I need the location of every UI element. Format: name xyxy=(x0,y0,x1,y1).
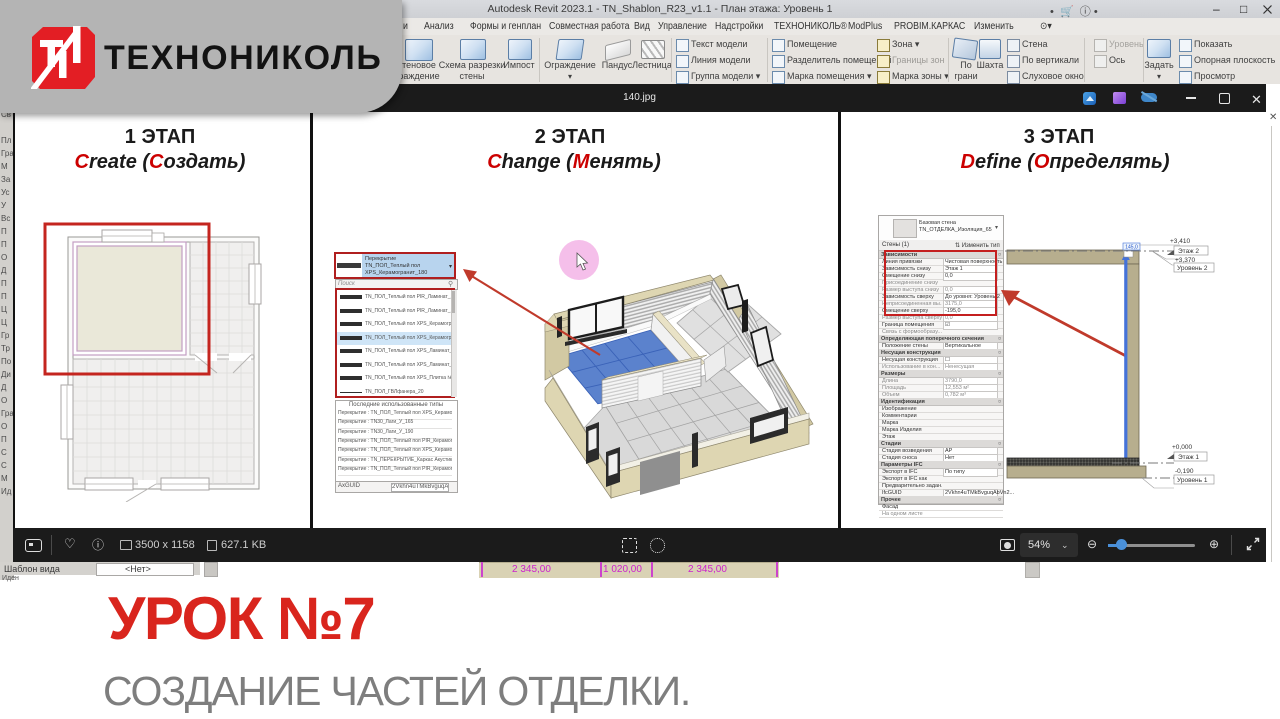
svg-text:-0,190: -0,190 xyxy=(1175,468,1194,475)
svg-text:+3,410: +3,410 xyxy=(1170,238,1190,245)
svg-text:Уровень 2: Уровень 2 xyxy=(1177,265,1208,272)
svg-text:Этаж 1: Этаж 1 xyxy=(1178,454,1199,461)
svg-text:Этаж 2: Этаж 2 xyxy=(1178,248,1199,255)
svg-text:Уровень 1: Уровень 1 xyxy=(1177,477,1208,484)
svg-text:+0,000: +0,000 xyxy=(1172,444,1192,451)
svg-text:145,0: 145,0 xyxy=(1125,245,1138,251)
